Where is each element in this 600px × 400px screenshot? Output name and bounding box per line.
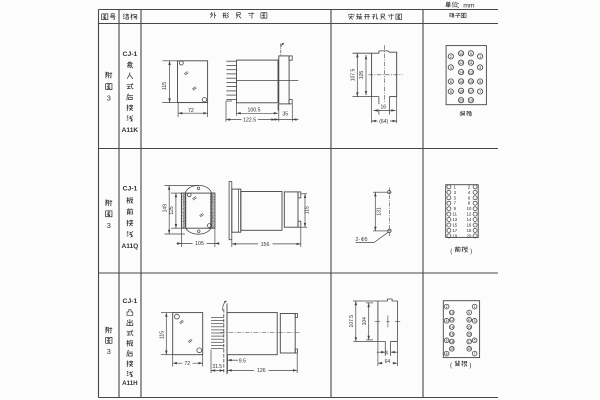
svg-text:2: 2 bbox=[446, 305, 448, 309]
svg-text:17: 17 bbox=[469, 89, 473, 93]
svg-text:105: 105 bbox=[359, 71, 365, 80]
svg-text:19: 19 bbox=[467, 347, 471, 351]
svg-text:(64): (64) bbox=[379, 119, 388, 125]
svg-text:3: 3 bbox=[474, 319, 476, 323]
svg-text:CJ-1: CJ-1 bbox=[123, 51, 138, 58]
svg-text:CJ-1: CJ-1 bbox=[123, 298, 138, 305]
svg-text:12: 12 bbox=[450, 318, 454, 322]
svg-text:13: 13 bbox=[452, 217, 457, 222]
svg-text:18: 18 bbox=[459, 89, 463, 93]
svg-text:12: 12 bbox=[467, 212, 472, 217]
svg-text:18: 18 bbox=[467, 228, 472, 233]
svg-text:9.5: 9.5 bbox=[239, 358, 246, 364]
svg-text:3: 3 bbox=[479, 66, 481, 70]
svg-text:A11Q: A11Q bbox=[121, 243, 138, 250]
svg-text:115: 115 bbox=[159, 331, 165, 339]
svg-text:4: 4 bbox=[450, 66, 452, 70]
svg-text:100.5: 100.5 bbox=[248, 107, 261, 113]
svg-text:11: 11 bbox=[453, 212, 458, 217]
svg-text:3: 3 bbox=[107, 94, 111, 103]
svg-text:Φ5: Φ5 bbox=[361, 237, 368, 243]
svg-text:7: 7 bbox=[474, 352, 476, 356]
svg-text:5: 5 bbox=[479, 80, 481, 84]
svg-text:): ) bbox=[470, 248, 472, 255]
svg-text:156: 156 bbox=[261, 242, 270, 248]
svg-text:115: 115 bbox=[162, 82, 168, 90]
svg-text:10: 10 bbox=[459, 52, 463, 56]
svg-text:16: 16 bbox=[381, 105, 387, 111]
svg-text:12: 12 bbox=[459, 61, 463, 65]
svg-text:9: 9 bbox=[470, 52, 472, 56]
svg-text:16: 16 bbox=[459, 80, 463, 84]
svg-text:1: 1 bbox=[474, 305, 476, 309]
svg-text:8: 8 bbox=[446, 352, 448, 356]
svg-text:15: 15 bbox=[467, 333, 471, 337]
svg-text:31.5: 31.5 bbox=[212, 364, 222, 370]
svg-text:122.5: 122.5 bbox=[243, 117, 256, 123]
svg-text:115: 115 bbox=[304, 206, 310, 214]
svg-text:125: 125 bbox=[169, 206, 175, 215]
svg-text:2-: 2- bbox=[356, 237, 361, 243]
svg-text:14: 14 bbox=[459, 71, 463, 75]
svg-text:5: 5 bbox=[474, 339, 476, 343]
svg-text:17: 17 bbox=[452, 228, 457, 233]
svg-text:19: 19 bbox=[452, 233, 457, 238]
svg-text:): ) bbox=[470, 112, 472, 118]
svg-text:149: 149 bbox=[163, 204, 169, 213]
svg-text:107.5: 107.5 bbox=[349, 315, 355, 328]
svg-text:17: 17 bbox=[467, 340, 471, 344]
svg-text:：mm: ：mm bbox=[456, 2, 474, 9]
svg-text:): ) bbox=[469, 362, 471, 369]
svg-text:131: 131 bbox=[376, 207, 382, 216]
svg-text:15: 15 bbox=[469, 80, 473, 84]
svg-text:16: 16 bbox=[467, 223, 472, 228]
svg-text:107.5: 107.5 bbox=[350, 69, 356, 82]
svg-text:72: 72 bbox=[188, 108, 194, 114]
svg-text:4: 4 bbox=[446, 319, 448, 323]
svg-text:2: 2 bbox=[450, 55, 452, 59]
svg-text:A11K: A11K bbox=[122, 127, 139, 134]
svg-text:9: 9 bbox=[468, 311, 470, 315]
svg-text:64: 64 bbox=[385, 359, 391, 365]
svg-text:CJ-1: CJ-1 bbox=[123, 185, 138, 192]
svg-text:15: 15 bbox=[452, 223, 457, 228]
svg-text:8: 8 bbox=[450, 90, 452, 94]
svg-text:3: 3 bbox=[107, 221, 111, 230]
svg-text:6: 6 bbox=[446, 339, 448, 343]
svg-text:11: 11 bbox=[469, 61, 473, 65]
svg-text:11: 11 bbox=[467, 318, 471, 322]
svg-text:20: 20 bbox=[467, 233, 472, 238]
svg-text:35: 35 bbox=[282, 111, 288, 117]
svg-text:10: 10 bbox=[467, 206, 472, 211]
svg-text:16: 16 bbox=[384, 350, 389, 355]
svg-text:6: 6 bbox=[450, 80, 452, 84]
svg-text:14: 14 bbox=[467, 217, 472, 222]
svg-text:16: 16 bbox=[450, 333, 454, 337]
svg-text:13: 13 bbox=[469, 71, 473, 75]
svg-text:1: 1 bbox=[479, 55, 481, 59]
svg-text:72: 72 bbox=[184, 361, 190, 367]
svg-text:105: 105 bbox=[195, 241, 204, 247]
svg-text:14: 14 bbox=[450, 325, 454, 329]
svg-text:18: 18 bbox=[450, 340, 454, 344]
svg-text:20: 20 bbox=[450, 347, 454, 351]
svg-text:13: 13 bbox=[467, 325, 471, 329]
svg-text:20: 20 bbox=[459, 99, 463, 103]
svg-text:3: 3 bbox=[107, 347, 111, 356]
svg-text:19: 19 bbox=[469, 99, 473, 103]
svg-text:A11H: A11H bbox=[122, 380, 138, 387]
svg-text:7: 7 bbox=[479, 90, 481, 94]
svg-text:10: 10 bbox=[450, 311, 454, 315]
svg-text:104: 104 bbox=[362, 317, 368, 326]
svg-text:126: 126 bbox=[257, 368, 266, 374]
